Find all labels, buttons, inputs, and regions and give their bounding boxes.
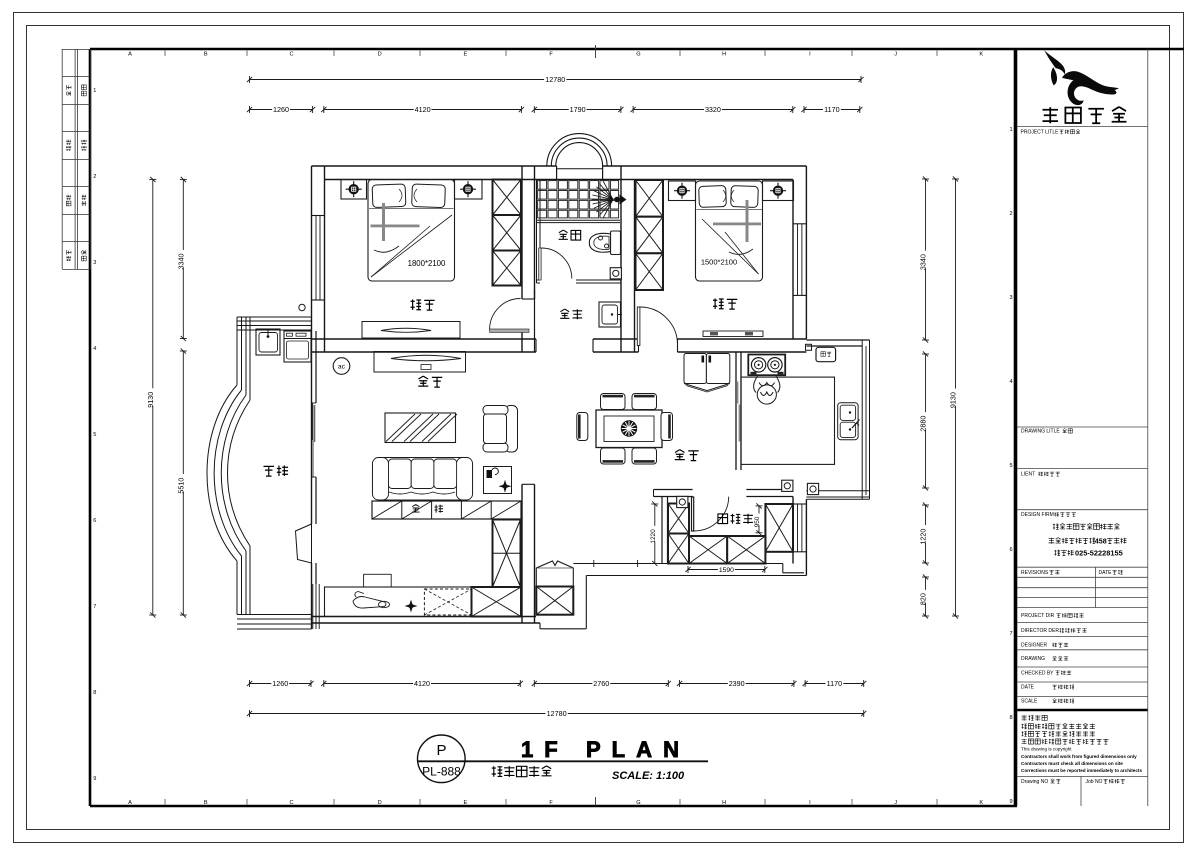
svg-text:3340: 3340 [919,254,928,270]
svg-text:5510: 5510 [176,478,185,494]
svg-text:4120: 4120 [414,679,430,688]
svg-text:B: B [204,800,208,806]
svg-text:J: J [894,52,897,58]
svg-text:Contractors shall work from fi: Contractors shall work from figured dime… [1021,754,1137,759]
svg-text:DATE: DATE [1021,685,1035,691]
svg-text:E: E [464,52,468,58]
svg-text:G: G [636,52,640,58]
svg-text:2: 2 [93,174,96,180]
svg-text:H: H [722,800,726,806]
svg-text:3320: 3320 [705,105,721,114]
svg-text:7: 7 [93,604,96,610]
svg-text:4: 4 [1009,379,1012,385]
svg-text:E: E [464,800,468,806]
svg-text:CHECKED BY: CHECKED BY [1021,670,1054,676]
svg-text:9: 9 [93,776,96,782]
svg-text:K: K [979,800,983,806]
svg-text:2390: 2390 [729,679,745,688]
svg-text:J: J [894,800,897,806]
svg-text:6: 6 [1009,547,1012,553]
svg-text:4: 4 [93,346,96,352]
svg-text:F: F [549,800,553,806]
svg-text:H: H [722,52,726,58]
svg-text:9130: 9130 [949,392,958,408]
svg-text:DRAWING: DRAWING [1021,656,1045,662]
svg-text:PROJECT DIR: PROJECT DIR [1021,613,1055,619]
svg-text:ac: ac [338,364,346,371]
svg-text:DRAWING LITLE: DRAWING LITLE [1021,429,1060,435]
svg-text:3340: 3340 [176,254,185,270]
svg-text:2760: 2760 [593,679,609,688]
svg-text:7: 7 [1009,631,1012,637]
svg-text:Contractors must check all dim: Contractors must check all dimensions on… [1021,761,1123,766]
svg-text:8: 8 [1009,715,1012,721]
svg-text:DATE: DATE [1099,570,1113,576]
svg-text:C: C [289,52,293,58]
svg-text:8: 8 [93,690,96,696]
svg-text:5: 5 [93,432,96,438]
svg-text:1170: 1170 [827,679,842,688]
svg-text:SCALE: 1:100: SCALE: 1:100 [612,770,685,782]
svg-text:820: 820 [919,593,928,605]
svg-text:2: 2 [1009,211,1012,217]
svg-text:Corrections must be reported i: Corrections must be reported immediately… [1021,768,1142,773]
svg-text:DIRECTOR DER: DIRECTOR DER [1021,628,1059,634]
svg-text:5: 5 [1009,463,1012,469]
svg-text:Job NO: Job NO [1086,779,1103,785]
svg-text:B: B [204,52,208,58]
svg-text:A: A [128,52,132,58]
svg-text:1500*2100: 1500*2100 [701,258,737,267]
svg-text:This drawing is copyright: This drawing is copyright [1021,747,1072,752]
svg-text:4120: 4120 [415,105,431,114]
svg-text:458: 458 [1095,537,1107,546]
svg-text:1220: 1220 [919,529,928,545]
svg-text:1260: 1260 [273,105,289,114]
svg-text:1: 1 [1009,127,1012,133]
svg-text:3: 3 [1009,295,1012,301]
svg-text:SCALE: SCALE [1021,699,1038,705]
svg-text:D: D [378,800,382,806]
svg-text:PROJECT LITLE: PROJECT LITLE [1021,130,1060,136]
svg-text:2880: 2880 [919,416,928,432]
svg-text:K: K [979,52,983,58]
svg-text:1790: 1790 [570,105,586,114]
svg-text:6: 6 [93,518,96,524]
svg-text:12780: 12780 [545,75,565,84]
svg-text:9130: 9130 [146,392,155,408]
svg-text:Drawing NO: Drawing NO [1021,779,1048,785]
svg-text:12780: 12780 [547,709,567,718]
svg-text:1: 1 [93,88,96,94]
svg-text:950: 950 [754,516,761,527]
svg-text:A: A [128,800,132,806]
svg-text:025-52228155: 025-52228155 [1075,549,1123,558]
svg-text:9: 9 [1009,799,1012,805]
svg-text:C: C [289,800,293,806]
svg-text:3: 3 [93,260,96,266]
svg-text:1170: 1170 [824,105,839,114]
svg-text:DESIGN FIRM: DESIGN FIRM [1021,512,1054,518]
svg-text:DESIGNER: DESIGNER [1021,643,1048,649]
svg-text:1220: 1220 [650,529,657,544]
svg-text:LIENT: LIENT [1021,472,1035,478]
svg-text:1260: 1260 [272,679,288,688]
svg-text:P: P [436,742,446,759]
svg-text:1800*2100: 1800*2100 [408,259,446,268]
svg-text:D: D [378,52,382,58]
svg-text:1590: 1590 [719,567,734,574]
svg-text:PL-888: PL-888 [422,765,461,779]
svg-text:REVISIONS: REVISIONS [1021,570,1049,576]
svg-text:F: F [549,52,553,58]
svg-text:G: G [636,800,640,806]
